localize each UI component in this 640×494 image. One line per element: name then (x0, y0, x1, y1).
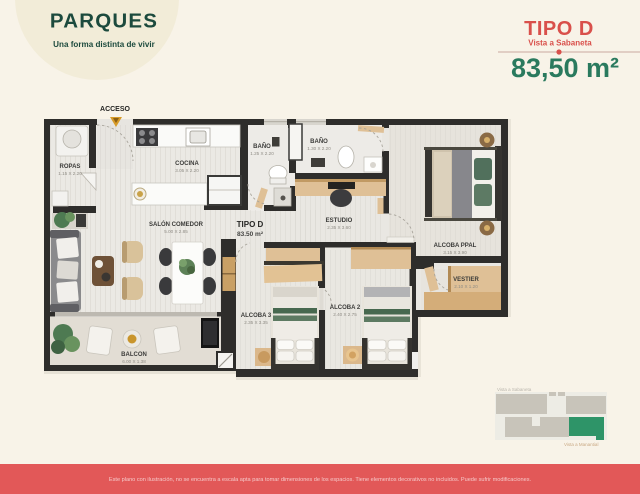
svg-text:1.30 X 2.20: 1.30 X 2.20 (307, 146, 331, 151)
svg-text:ALCOBA 2: ALCOBA 2 (330, 305, 361, 311)
svg-text:SALÓN COMEDOR: SALÓN COMEDOR (149, 220, 204, 228)
svg-text:Vista a Sabaneta: Vista a Sabaneta (528, 39, 592, 48)
svg-text:Una forma distinta de vivir: Una forma distinta de vivir (53, 40, 155, 49)
svg-text:COCINA: COCINA (175, 161, 199, 167)
svg-text:2.10 X 1.20: 2.10 X 1.20 (454, 284, 478, 289)
svg-text:1.15 X 2.20: 1.15 X 2.20 (58, 171, 82, 176)
svg-text:BAÑO: BAÑO (253, 143, 271, 150)
svg-text:1.25 X 2.20: 1.25 X 2.20 (250, 151, 274, 156)
svg-text:2.35 X 3.35: 2.35 X 3.35 (244, 320, 268, 325)
svg-text:Vista a Sabaneta: Vista a Sabaneta (497, 387, 532, 392)
svg-text:Vista a Manantial: Vista a Manantial (564, 442, 598, 447)
svg-text:2.35 X 3.60: 2.35 X 3.60 (327, 225, 351, 230)
svg-text:6.00 X 1.38: 6.00 X 1.38 (122, 359, 146, 364)
svg-text:3.05 X 2.20: 3.05 X 2.20 (175, 168, 199, 173)
svg-text:TIPO D: TIPO D (524, 18, 594, 40)
svg-text:ESTUDIO: ESTUDIO (326, 218, 353, 224)
svg-text:BALCON: BALCON (121, 352, 147, 358)
svg-text:2.40 X 2.75: 2.40 X 2.75 (333, 312, 357, 317)
svg-text:PARQUES: PARQUES (50, 10, 158, 33)
svg-text:Este plano con ilustración, no: Este plano con ilustración, no se encuen… (109, 477, 532, 483)
svg-text:BAÑO: BAÑO (310, 138, 328, 145)
svg-text:83.50 m²: 83.50 m² (237, 231, 264, 238)
svg-text:ROPAS: ROPAS (60, 164, 81, 170)
svg-text:VESTIER: VESTIER (453, 277, 479, 283)
svg-text:83,50 m²: 83,50 m² (511, 53, 619, 83)
svg-text:ALCOBA PPAL: ALCOBA PPAL (434, 243, 477, 249)
svg-text:5.00 X 2.85: 5.00 X 2.85 (164, 229, 188, 234)
svg-text:ACCESO: ACCESO (100, 106, 131, 113)
svg-text:ALCOBA 3: ALCOBA 3 (241, 313, 272, 319)
svg-text:3.15 X 3.90: 3.15 X 3.90 (443, 250, 467, 255)
svg-text:TIPO D: TIPO D (237, 220, 264, 229)
